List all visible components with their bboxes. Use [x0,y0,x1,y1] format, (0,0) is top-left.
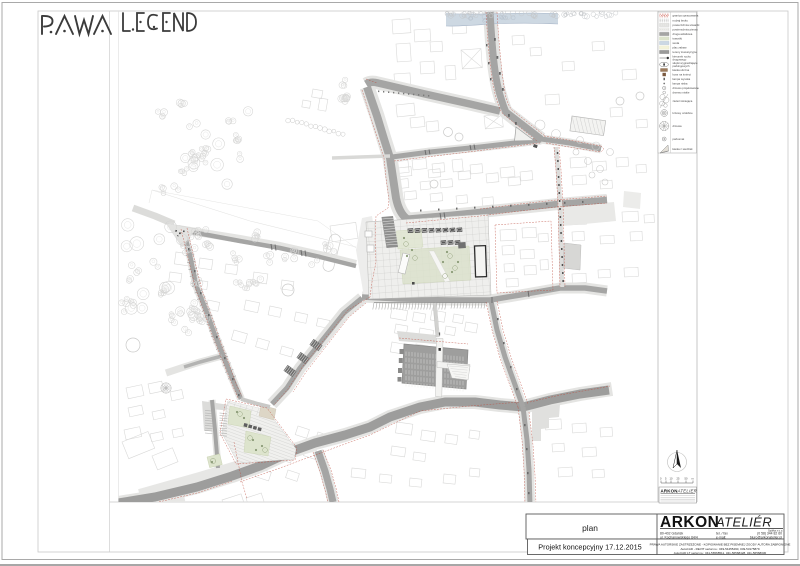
svg-text:granica opracowania: granica opracowania [673,14,699,18]
svg-text:parkomat: parkomat [673,137,685,141]
svg-text:zieleń istniejąca: zieleń istniejąca [673,99,693,103]
svg-text:powierzchnia piesza: powierzchnia piesza [673,28,699,32]
svg-text:Projekt koncepcyjny 17.12.2015: Projekt koncepcyjny 17.12.2015 [538,542,641,551]
svg-text:e-mail:: e-mail: [716,536,726,540]
svg-text:plac zabaw: plac zabaw [673,46,688,50]
svg-text:tereny inwestycyjne: tereny inwestycyjne [673,50,698,54]
svg-text:drzewa: drzewa [673,124,682,128]
svg-text:AutoCAD LT serial no.: 341-565: AutoCAD LT serial no.: 341-56568511, 341… [674,551,767,555]
svg-text:krzewy ozdobne: krzewy ozdobne [673,111,694,115]
svg-text:lampa wysoka: lampa wysoka [673,77,691,81]
svg-text:trawniki: trawniki [673,37,683,41]
svg-text:drzewo projektowane: drzewo projektowane [673,86,700,90]
svg-text:ARKONATELIER: ARKONATELIER [661,489,698,494]
svg-text:woda: woda [673,41,680,45]
svg-text:ławka uliczna: ławka uliczna [673,68,690,72]
svg-text:ławka z siedzisk: ławka z siedzisk [673,147,694,151]
svg-text:ATELIÉR: ATELIÉR [715,515,772,530]
svg-text:droga asfaltowa: droga asfaltowa [673,32,693,36]
svg-text:biuro@arkonatelier.pl: biuro@arkonatelier.pl [750,536,782,540]
svg-text:rodzaj bruku: rodzaj bruku [673,19,689,23]
svg-text:ul. Kochanowskiego 64/4: ul. Kochanowskiego 64/4 [660,536,698,540]
svg-text:lampa niska: lampa niska [673,82,688,86]
svg-text:PRAWA AUTORSKIE ZASTRZEŻONE -: PRAWA AUTORSKIE ZASTRZEŻONE - KOPIOWANIE… [650,542,791,547]
svg-text:kosz na śmieci: kosz na śmieci [673,73,692,77]
svg-text:plan: plan [582,523,598,533]
svg-text:drzewo niskie: drzewo niskie [673,91,690,95]
svg-text:powierzchnia utwardz.: powierzchnia utwardz. [673,23,701,27]
svg-text:m: m [692,478,694,481]
